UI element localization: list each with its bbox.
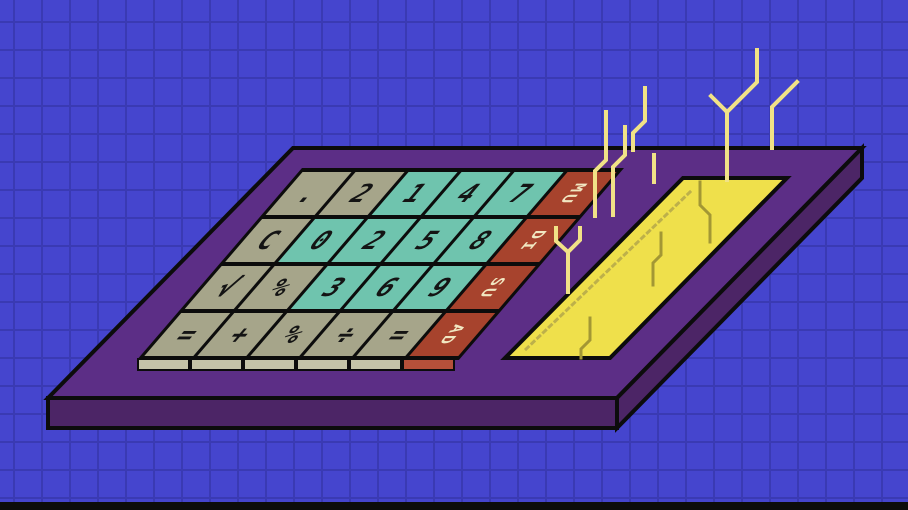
circuit-trace-3 bbox=[581, 318, 590, 358]
electric-spark-6 bbox=[613, 127, 625, 215]
electric-spark-3 bbox=[568, 228, 580, 252]
electric-spark-1 bbox=[595, 112, 606, 216]
display-shade-dotted-line bbox=[523, 192, 690, 352]
electric-spark-9 bbox=[772, 82, 797, 148]
circuit-trace-2 bbox=[653, 233, 661, 285]
electric-spark-8 bbox=[727, 50, 757, 112]
electric-spark-7 bbox=[711, 96, 727, 180]
circuit-trace-1 bbox=[700, 182, 710, 242]
bottom-border-strip bbox=[0, 502, 908, 510]
electric-spark-2 bbox=[556, 228, 568, 292]
electric-spark-5 bbox=[633, 88, 645, 150]
pixel-art-calculator-scene: .2147MUC0258DI√%369SU=+%÷=AD bbox=[0, 0, 908, 510]
sparks-overlay bbox=[0, 0, 908, 510]
